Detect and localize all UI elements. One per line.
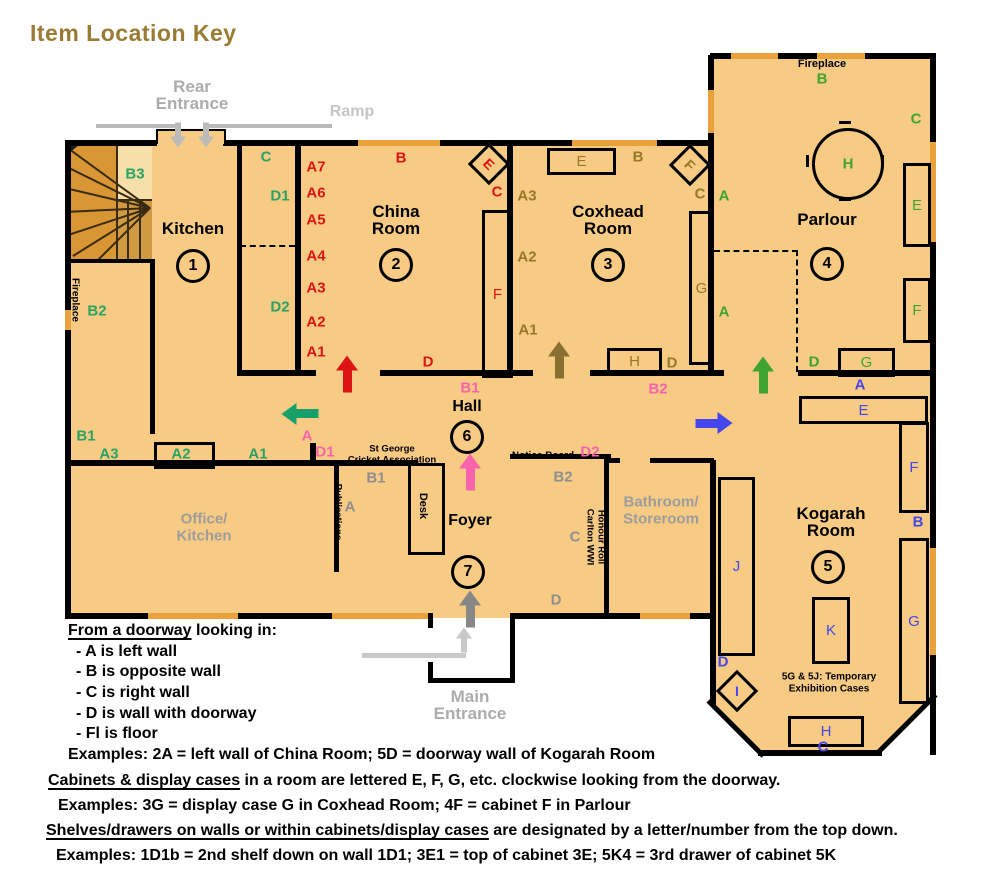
legend-line: From a doorway looking in: (68, 622, 277, 640)
dashed-boundary (796, 250, 800, 372)
wall-label-B2: B2 (87, 303, 106, 320)
floor-plan-page: Item Location Key FEGHEFGEFGJKHEFI123456… (0, 0, 1000, 876)
legend-line: Examples: 2A = left wall of China Room; … (68, 746, 655, 764)
wall-segment (806, 155, 809, 167)
desk-label: Desk (417, 493, 429, 519)
room-name-china: Room (372, 219, 420, 239)
arrow-head (170, 137, 186, 148)
arrow-head (459, 454, 481, 469)
wall-label-B1: B1 (76, 428, 95, 445)
wall-label-D1: D1 (315, 444, 334, 461)
wall-label-A7: A7 (306, 159, 325, 176)
wall-label-A5: A5 (306, 212, 325, 229)
wall-segment (428, 662, 433, 683)
legend-line: Shelves/drawers on walls or within cabin… (46, 822, 898, 840)
stairs (65, 142, 152, 262)
wall-label-A1: A1 (306, 344, 325, 361)
entrance-path-line (208, 124, 332, 128)
arrow-hall (459, 454, 481, 491)
dashed-boundary (714, 250, 798, 254)
room-name-hall: Hall (452, 398, 481, 416)
wall-label-A: A (719, 188, 730, 205)
arrow-head (718, 412, 733, 434)
st-george-label: St George (369, 444, 414, 455)
wall-label-A3: A3 (99, 446, 118, 463)
room-name-office: Kitchen (176, 528, 231, 545)
wall-label-C: C (911, 111, 922, 128)
room-name-office: Office/ (181, 511, 228, 528)
case-label: E (576, 153, 586, 170)
case-label: F (493, 286, 502, 303)
room-name-foyer: Foyer (448, 512, 492, 530)
arrow-shaft (555, 357, 564, 379)
wall-label-A6: A6 (306, 185, 325, 202)
wall-label-B: B (396, 150, 407, 167)
case-label: K (826, 622, 836, 639)
wall-label-D: D (423, 354, 434, 371)
wall-label-D2: D2 (580, 444, 599, 461)
wall-segment (710, 460, 716, 705)
wall-label-C: C (261, 149, 272, 166)
wall-segment (430, 678, 515, 683)
room-name-bathroom: Storeroom (623, 511, 699, 528)
arrow-shaft (696, 419, 718, 428)
wall-label-C: C (570, 529, 581, 546)
honour-roll-label: Carlton WWI (585, 509, 596, 565)
case-label: J (733, 558, 741, 575)
arrow-china-room (336, 356, 358, 393)
display-case-E: E (799, 396, 928, 424)
arrow-shaft (297, 410, 319, 419)
legend-line: - Fl is floor (76, 725, 158, 743)
wall-segment (150, 262, 155, 434)
door-recess (156, 129, 226, 144)
wall-label-A: A (855, 377, 866, 394)
notice-board-label: Notice Board (512, 451, 574, 462)
parlour-fireplace-label: Fireplace (798, 58, 846, 70)
room-name-coxhead: Room (584, 219, 632, 239)
wall-label-A2: A2 (306, 314, 325, 331)
wall-segment (65, 140, 71, 618)
window (358, 140, 440, 146)
wall-label-B1: B1 (460, 380, 479, 397)
display-case-H: H (607, 348, 662, 375)
arrow-rear-entrance (198, 123, 214, 148)
exhibition-note: Exhibition Cases (789, 684, 870, 695)
wall-label-A2: A2 (171, 446, 190, 463)
exhibition-note: 5G & 5J: Temporary (782, 672, 876, 683)
arrow-head (282, 403, 297, 425)
legend-line: - A is left wall (76, 643, 177, 661)
case-label: G (861, 354, 873, 371)
room-number-6: 6 (450, 420, 484, 454)
case-label: F (909, 459, 918, 476)
arrow-head (548, 342, 570, 357)
wall-segment (237, 370, 316, 376)
wall-label-B2: B2 (648, 381, 667, 398)
wall-segment (237, 142, 242, 374)
wall-label-A1: A1 (248, 446, 267, 463)
arrow-rear-entrance (170, 123, 186, 148)
legend-line: - D is wall with doorway (76, 705, 256, 723)
wall-label-D: D (809, 354, 820, 371)
room-name-kitchen: Kitchen (162, 219, 224, 239)
wall-label-C: C (492, 184, 503, 201)
window (640, 613, 690, 619)
arrow-head (752, 357, 774, 372)
wall-label-D: D (718, 654, 729, 671)
arrow-shaft (466, 469, 475, 491)
case-label: H (821, 723, 832, 740)
display-case-K: K (812, 597, 850, 664)
arrow-parlour (752, 357, 774, 394)
dashed-boundary (240, 245, 295, 249)
wall-label-A: A (345, 499, 356, 516)
case-label: I (735, 683, 739, 699)
room-number-1: 1 (176, 249, 210, 283)
display-case-J: J (718, 477, 755, 656)
rear-entrance-label: Entrance (156, 94, 229, 114)
arrow-kitchen (282, 403, 319, 425)
display-case-G: G (689, 211, 714, 365)
wall-label-A1: A1 (518, 322, 537, 339)
wall-label-B1: B1 (366, 470, 385, 487)
room-name-kogarah: Room (807, 521, 855, 541)
wall-segment (65, 259, 155, 263)
wall-label-B: B (633, 149, 644, 166)
legend-line: Examples: 1D1b = 2nd shelf down on wall … (56, 847, 836, 865)
legend-line: - B is opposite wall (76, 663, 221, 681)
display-case-F: F (482, 210, 513, 378)
wall-label-D1: D1 (270, 188, 289, 205)
table-label: H (843, 156, 854, 173)
wall-segment (295, 142, 301, 374)
arrow-head (459, 591, 481, 606)
case-label: F (681, 156, 698, 173)
wall-label-B: B (913, 514, 924, 531)
wall-segment (650, 458, 714, 463)
arrow-shaft (203, 123, 209, 137)
room-name-parlour: Parlour (797, 210, 857, 230)
entrance-path-line (362, 653, 466, 658)
wall-segment (428, 613, 433, 628)
display-case-G: G (838, 348, 895, 377)
window (572, 140, 657, 146)
room-number-7: 7 (451, 555, 485, 589)
wall-label-A: A (302, 428, 313, 445)
case-label: F (912, 302, 921, 319)
arrow-head (456, 628, 472, 639)
entrance-path-line (96, 124, 180, 128)
room-number-5: 5 (811, 550, 845, 584)
arrow-main-entrance (456, 628, 472, 653)
arrow-shaft (759, 372, 768, 394)
kitchen-fireplace-label: Fireplace (70, 278, 81, 322)
wall-label-A2: A2 (517, 249, 536, 266)
arrow-head (198, 137, 214, 148)
honour-roll-label: Honour Roll (596, 510, 607, 564)
arrow-shaft (343, 371, 352, 393)
arrow-shaft (175, 123, 181, 137)
arrow-kogarah-room (696, 412, 733, 434)
wall-label-A: A (719, 304, 730, 321)
publications-label: Publications (333, 484, 344, 540)
wall-label-D2: D2 (270, 299, 289, 316)
display-case-E: E (547, 148, 616, 175)
wall-label-A3: A3 (306, 280, 325, 297)
window (332, 613, 428, 619)
arrow-shaft (466, 606, 475, 628)
wall-segment (65, 140, 157, 146)
arrow-foyer (459, 591, 481, 628)
window (930, 548, 936, 655)
room-number-4: 4 (810, 247, 844, 281)
legend-line: Cabinets & display cases in a room are l… (48, 772, 780, 790)
wall-segment (839, 121, 851, 124)
display-case-G: G (899, 538, 929, 704)
wall-label-B3: B3 (125, 166, 144, 183)
wall-label-B2: B2 (553, 469, 572, 486)
case-label: E (480, 155, 498, 173)
arrow-head (336, 356, 358, 371)
case-label: H (629, 353, 640, 370)
round-table: H (812, 128, 884, 200)
wall-label-C: C (818, 739, 829, 756)
window (148, 613, 238, 619)
display-case-F: F (903, 278, 931, 343)
wall-label-A4: A4 (306, 248, 325, 265)
st-george-label: Cricket Association (348, 455, 436, 466)
floor-plan: FEGHEFGEFGJKHEFI1234567HKitchenChinaRoom… (0, 0, 1000, 876)
arrow-coxhead-room (548, 342, 570, 379)
legend-line: Examples: 3G = display case G in Coxhead… (58, 797, 631, 815)
wall-label-A3: A3 (517, 188, 536, 205)
room-number-3: 3 (591, 248, 625, 282)
room-name-bathroom: Bathroom/ (624, 494, 699, 511)
arrow-shaft (461, 639, 467, 653)
wall-label-B: B (817, 71, 828, 88)
main-entrance-label: Entrance (434, 704, 507, 724)
wall-label-D: D (667, 355, 678, 372)
display-case-F: F (899, 422, 929, 513)
wall-label-D: D (551, 592, 562, 609)
wall-segment (510, 613, 515, 683)
display-case-E: E (903, 163, 931, 247)
wall-label-C: C (695, 186, 706, 203)
case-label: E (858, 402, 868, 419)
window (731, 53, 778, 59)
legend-line: - C is right wall (76, 684, 190, 702)
room-number-2: 2 (379, 248, 413, 282)
ramp-label: Ramp (330, 103, 374, 121)
case-label: G (908, 613, 920, 630)
case-label: G (696, 280, 708, 297)
window (708, 90, 714, 133)
case-label: E (912, 197, 922, 214)
